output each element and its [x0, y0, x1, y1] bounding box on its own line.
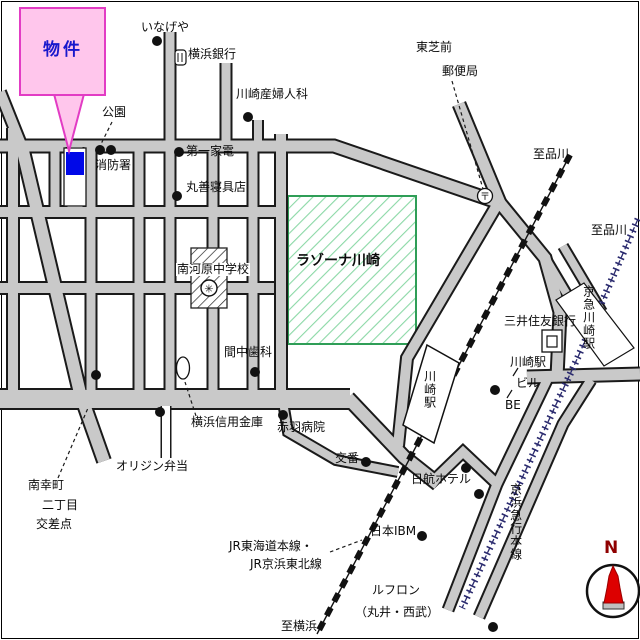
label-to-shinagawa-keikyu: 至品川: [591, 224, 627, 237]
label-nichome: 二丁目: [42, 499, 78, 512]
label-kawasaki-sta-bldg: 川崎駅: [510, 356, 546, 369]
label-minamikawara-school: 南河原中学校: [176, 263, 250, 276]
label-yokohama-bank: 横浜銀行: [188, 48, 236, 61]
label-jr-kawasaki-sta: 川崎駅: [423, 370, 436, 409]
label-manaka-dental: 間中歯科: [224, 346, 272, 359]
label-keikyu-kawasaki-sta: 京急川崎駅: [582, 285, 595, 350]
label-jr-keihintohoku: JR京浜東北線: [250, 558, 322, 571]
school-block: [191, 248, 227, 308]
svg-text:〒: 〒: [480, 192, 490, 203]
label-yubinkyoku: 郵便局: [442, 65, 478, 78]
label-jr-tokaido: JR東海道本線・: [229, 540, 313, 553]
label-yokohama-shinkin: 横浜信用金庫: [191, 416, 263, 429]
label-nikko-hotel: 日航ホテル: [411, 473, 471, 486]
label-lazona: ラゾーナ川崎: [296, 254, 380, 269]
label-inageya: いなげや: [141, 21, 189, 34]
label-bldg-biru: ビル: [516, 377, 540, 390]
label-mitsui-bank: 三井住友銀行: [504, 315, 576, 328]
label-nihon-ibm: 日本IBM: [370, 525, 416, 538]
label-kosaten: 交差点: [36, 518, 72, 531]
label-koban: 交番: [335, 452, 359, 465]
label-maruzen: 丸善寝具店: [186, 181, 246, 194]
label-lefront: ルフロン: [372, 584, 420, 597]
school-icon: ✳: [201, 280, 217, 296]
yokohama-bank-icon: [175, 50, 186, 65]
label-toshiba-mae: 東芝前: [416, 41, 452, 54]
label-to-shinagawa-jr: 至品川: [533, 148, 569, 161]
lazona-kawasaki-area: [288, 196, 416, 344]
label-bldg-be: BE: [505, 399, 521, 412]
label-origin-bento: オリジン弁当: [116, 460, 188, 473]
label-to-yokohama: 至横浜: [281, 620, 317, 633]
label-keihin-kyuko-line: 京浜急行本線: [509, 483, 522, 561]
label-sanfujinka: 川崎産婦人科: [236, 88, 308, 101]
property-label-text: 物件: [43, 40, 83, 60]
compass: [587, 565, 639, 617]
label-minamisaiwai: 南幸町: [28, 479, 64, 492]
kawasaki-area-map: 〒 ✳ 物件 いなげや 横浜銀行 川崎産婦人科 東芝前 郵便局: [0, 0, 640, 640]
compass-north-label: N: [604, 540, 618, 558]
svg-text:✳: ✳: [204, 283, 213, 296]
mitsui-bank-icon: [542, 330, 562, 352]
property-marker: [66, 152, 84, 175]
label-shobosho: 消防署: [95, 159, 131, 172]
label-kouen: 公園: [102, 106, 126, 119]
label-lefront-sub: （丸井・西武）: [355, 606, 439, 619]
shinkin-bank-icon: [177, 357, 190, 379]
post-office-icon: 〒: [478, 189, 493, 204]
callout-label: 物件: [43, 42, 83, 60]
label-akabane-hospital: 赤羽病院: [277, 421, 325, 434]
label-daiichi-kaden: 第一家電: [186, 145, 234, 158]
